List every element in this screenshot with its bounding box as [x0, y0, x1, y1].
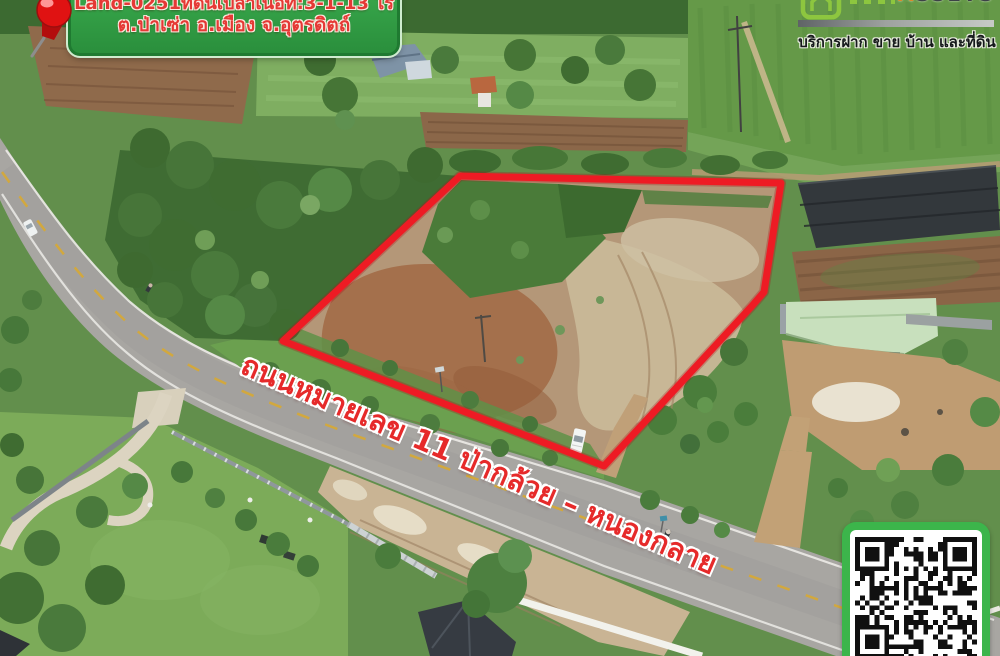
pushpin-icon — [16, 0, 86, 62]
listing-location: ต.ป่าเซ่า อ.เมือง จ.อุตรดิตถ์ — [71, 15, 397, 36]
house-icon — [798, 0, 844, 20]
screenshot-root: Land-0251ที่ดินเปล่าเนื้อที่:3-1-13 ไร่ … — [0, 0, 1000, 656]
logo-divider-bar — [798, 20, 994, 27]
qr-modules — [855, 535, 977, 656]
brand-rest: SSETS — [915, 0, 995, 6]
brand-initial: A — [898, 0, 915, 6]
brand-logo: ASSETS บริการฝาก ขาย บ้าน และที่ดิน — [794, 0, 1000, 54]
logo-letter-stems — [850, 0, 896, 14]
qr-code — [842, 522, 990, 656]
listing-banner: Land-0251ที่ดินเปล่าเนื้อที่:3-1-13 ไร่ … — [68, 0, 400, 56]
brand-tagline: บริการฝาก ขาย บ้าน และที่ดิน — [794, 30, 1000, 54]
brand-name: ASSETS — [898, 0, 995, 6]
qr-inner — [850, 530, 982, 656]
listing-title: Land-0251ที่ดินเปล่าเนื้อที่:3-1-13 ไร่ — [71, 0, 397, 14]
